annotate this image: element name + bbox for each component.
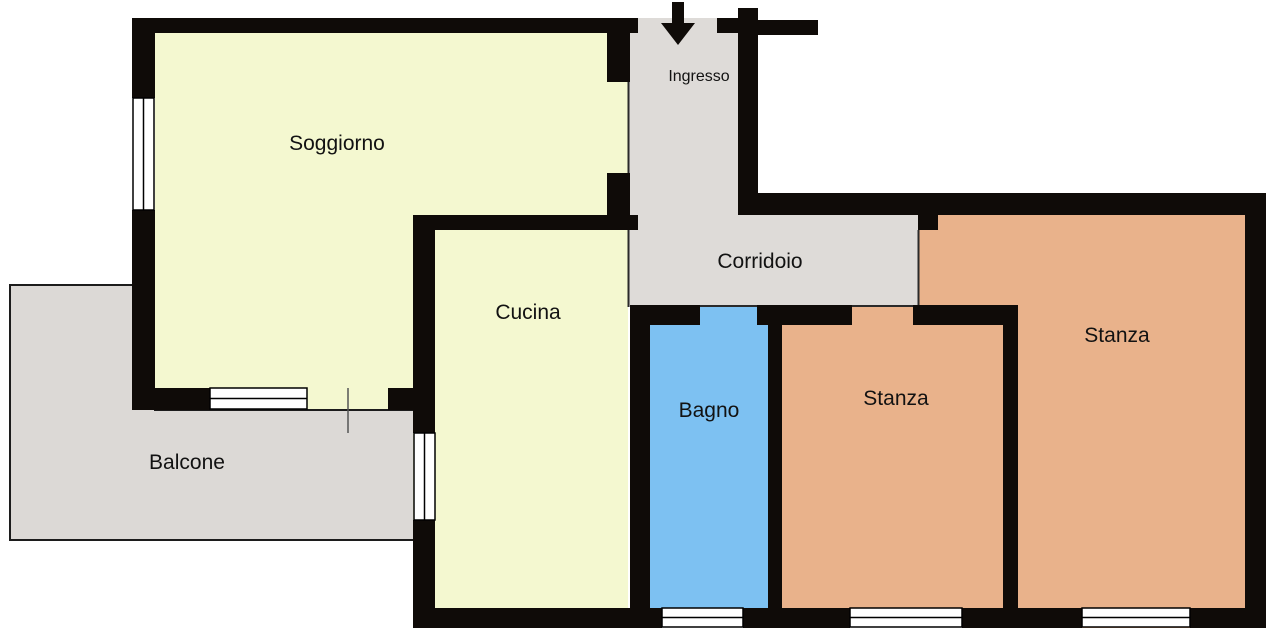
wall-left-lower — [132, 210, 155, 410]
ingresso-floor — [628, 18, 740, 230]
wall-bottom-2 — [743, 608, 850, 628]
floor-plan-canvas: Soggiorno Ingresso Corridoio Cucina Bagn… — [0, 0, 1280, 640]
bagno-floor — [650, 305, 768, 608]
room-label-bagno: Bagno — [679, 399, 740, 422]
wall-top-right-spur — [758, 20, 818, 35]
wall-stanza-divider — [1003, 323, 1018, 628]
wall-bagno-stanza-divider — [768, 305, 782, 628]
room-label-ingresso: Ingresso — [668, 68, 729, 85]
room-label-soggiorno: Soggiorno — [289, 132, 385, 155]
window-bagno-bottom — [662, 608, 743, 627]
window-cucina-balcony — [414, 433, 435, 520]
wall-soggiorno-ingresso-stub-lower — [607, 173, 630, 215]
cucina-floor — [413, 215, 628, 608]
room-label-balcone: Balcone — [149, 451, 225, 474]
wall-bottom-1 — [413, 608, 662, 628]
wall-cucina-bagno-divider — [630, 305, 650, 628]
wall-bottom-4 — [1190, 608, 1266, 628]
wall-bottom-3 — [962, 608, 1082, 628]
wall-stanza-right-door-jamb — [918, 215, 938, 230]
wall-soggiorno-bottom-left — [132, 388, 210, 410]
room-label-stanza-middle: Stanza — [863, 387, 929, 410]
wall-corridoio-stanza-top — [758, 193, 1266, 215]
wall-right-exterior — [1245, 193, 1266, 628]
floor-plan: Soggiorno Ingresso Corridoio Cucina Bagn… — [0, 0, 1280, 640]
window-stanza-middle-bottom — [850, 608, 962, 627]
wall-top-soggiorno — [132, 18, 638, 33]
window-stanza-right-bottom — [1082, 608, 1190, 627]
window-soggiorno-bottom — [210, 388, 307, 409]
room-label-stanza-right: Stanza — [1084, 324, 1150, 347]
wall-stanza-middle-top-right — [913, 305, 1018, 325]
stanza-middle-floor — [782, 305, 1003, 608]
wall-ingresso-right — [738, 8, 758, 215]
wall-entrance-right-jamb — [717, 18, 740, 33]
room-label-corridoio: Corridoio — [717, 250, 802, 273]
room-label-cucina: Cucina — [495, 301, 561, 324]
wall-soggiorno-ingresso-stub-upper — [607, 33, 630, 82]
window-soggiorno-left — [133, 98, 154, 210]
wall-soggiorno-cucina-divider — [413, 215, 638, 230]
wall-cucina-left-upper — [413, 215, 435, 433]
wall-left-upper — [132, 18, 155, 98]
